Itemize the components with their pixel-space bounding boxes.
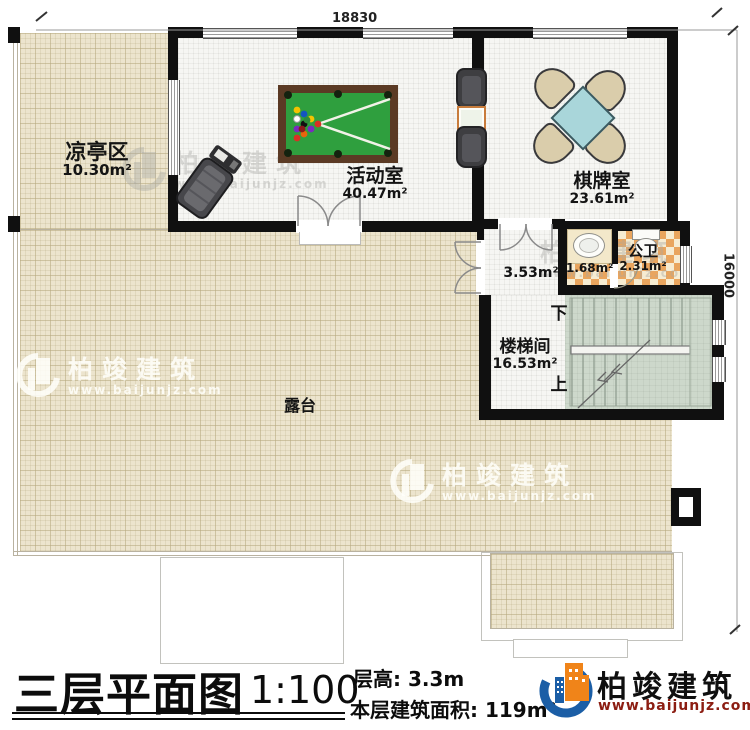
pavilion-name: 凉亭区	[47, 141, 147, 163]
activity-area: 40.47m²	[327, 187, 423, 202]
dimension-right: 16000	[721, 253, 736, 299]
hallway-area: 3.53m²	[500, 266, 562, 281]
stair-up-label: 上	[548, 377, 570, 395]
chess-hall-double-door	[500, 224, 552, 250]
washroom-area: 1.68m²	[566, 262, 612, 275]
terrace-name: 露台	[278, 398, 322, 415]
stair-treads-upper	[572, 298, 682, 346]
pavilion-area: 10.30m²	[47, 163, 147, 179]
toilet-name: 公卫	[618, 244, 668, 260]
activity-label: 活动室 40.47m²	[327, 167, 423, 202]
stairwell-area: 16.53m²	[490, 357, 560, 372]
stairwell-label: 楼梯间 16.53m²	[490, 339, 560, 372]
hallway-label: 3.53m²	[500, 266, 562, 281]
floor-area-label: 本层建筑面积: 119m²	[350, 694, 556, 723]
toilet-label: 公卫 2.31m²	[618, 244, 668, 272]
stair-down-label: 下	[548, 306, 570, 324]
terrace-label: 露台	[278, 398, 322, 415]
stairs	[570, 298, 711, 408]
pavilion-label: 凉亭区 10.30m²	[47, 141, 147, 179]
toilet-area: 2.31m²	[618, 260, 668, 273]
sheet-scale: 1:100	[250, 668, 360, 712]
dimension-ticks	[36, 8, 740, 634]
dimension-top: 18830	[332, 11, 377, 26]
title-underline	[12, 712, 345, 720]
chess-area: 23.61m²	[556, 192, 648, 207]
dimension-lines	[36, 30, 737, 632]
floor-plan-sheet: 柏竣建筑 www.baijunjz.com 柏竣建筑 www.baijunjz.…	[0, 0, 750, 730]
chess-name: 棋牌室	[556, 172, 648, 192]
brand-website: www.baijunjz.com	[598, 698, 750, 714]
stairwell-name: 楼梯间	[490, 339, 560, 357]
chess-label: 棋牌室 23.61m²	[556, 172, 648, 207]
floor-height-label: 层高: 3.3m	[353, 663, 464, 692]
activity-name: 活动室	[327, 167, 423, 187]
brand-logo-icon	[538, 655, 598, 721]
linework-overlay	[0, 0, 750, 730]
stair-handrail	[571, 346, 690, 354]
hall-terrace-double-door	[455, 242, 481, 293]
washroom-label: 1.68m²	[566, 262, 612, 275]
